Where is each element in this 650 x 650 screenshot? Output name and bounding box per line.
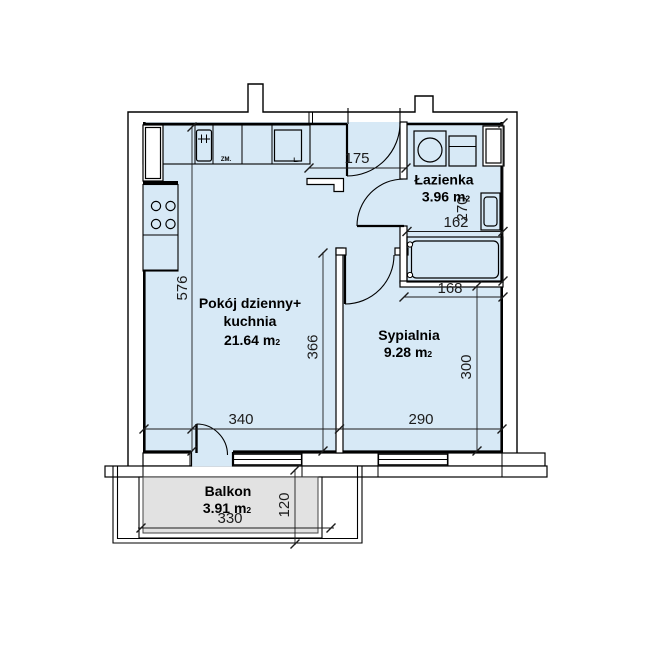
bedroom-label: Sypialnia	[378, 327, 440, 343]
living-room-area: 21.64 m2	[224, 332, 280, 348]
dim-balcony-depth: 120	[276, 492, 293, 517]
balcony-area: 3.91 m2	[203, 500, 252, 516]
dim-bedroom-width: 290	[408, 411, 433, 428]
bathroom-label: Łazienka	[414, 172, 473, 188]
living-room-label-line1: Pokój dzienny+	[199, 295, 301, 311]
bedroom-area: 9.28 m2	[384, 344, 433, 360]
dim-living-height-inner: 366	[305, 334, 322, 359]
wall-living-bedroom	[336, 248, 343, 453]
dim-apartment-depth: 576	[174, 275, 191, 300]
floorplan: ZM. L.	[0, 0, 650, 650]
dim-bedroom-height: 300	[458, 354, 475, 379]
dishwasher-label: ZM.	[221, 157, 232, 163]
balcony-door-opening	[192, 452, 233, 467]
living-room-label-line2: kuchnia	[224, 313, 277, 329]
dim-living-width: 340	[228, 411, 253, 428]
bathroom-area: 3.96 m2	[422, 189, 471, 205]
bottom-window-wall	[105, 452, 547, 477]
wall-bedroom-stub-left	[336, 248, 346, 255]
floorplan-page: ZM. L.	[0, 0, 650, 650]
balcony-label: Balkon	[205, 483, 252, 499]
dim-hallway-width: 175	[344, 150, 369, 167]
fridge-label: L.	[293, 158, 299, 164]
dim-bathtub-niche-width: 168	[437, 280, 462, 297]
